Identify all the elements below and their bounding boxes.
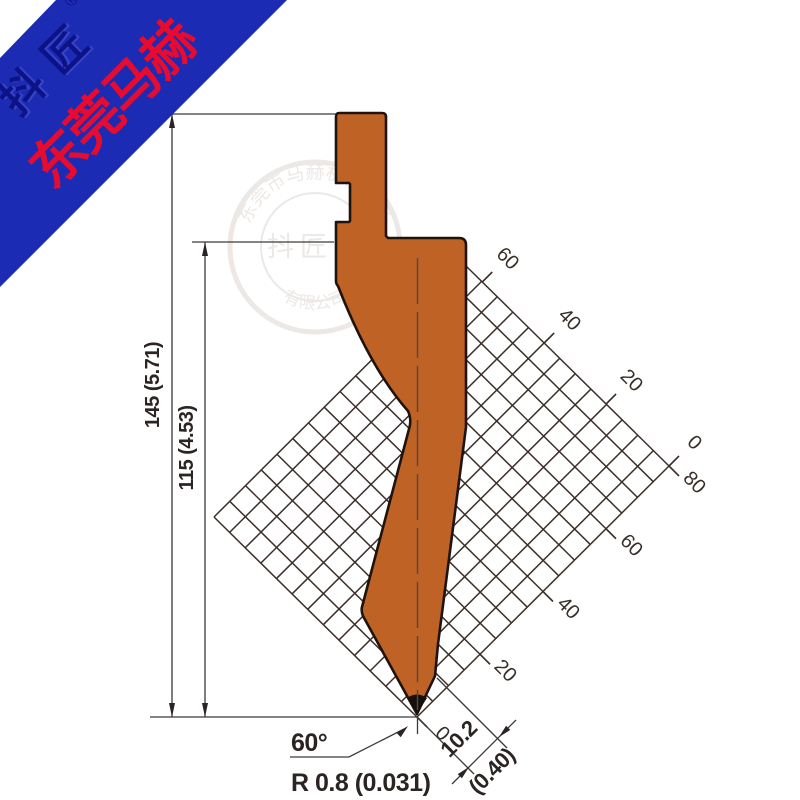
grid-scale-label: 60 [616,530,647,561]
grid-line [669,456,679,466]
tip-angle-callout: 60° R 0.8 (0.031) [290,726,431,797]
grid-scale-label: 40 [553,593,584,624]
grid-line [480,654,490,664]
label-working-height: 115 (4.53) [176,405,198,490]
technical-drawing: 东莞市马赫机械设备 有限公司 抖匠 ® 0204060806040200 145… [0,0,800,800]
grid-line [482,272,492,282]
label-tip-width-in: (0.40) [464,742,520,798]
label-tip-width-mm: 10.2 [435,715,482,762]
grid-line [606,529,616,539]
grid-scale-label: 20 [490,655,521,686]
arrowhead [169,703,175,717]
grid-line [466,266,669,466]
grid-scale-label: 80 [679,467,710,498]
label-tip-radius: R 0.8 (0.031) [291,769,431,797]
watermark-center-text: 抖匠 [267,232,333,262]
label-total-height: 145 (5.71) [142,342,164,428]
grid-line [669,466,679,476]
grid-line [544,333,554,343]
grid-scale-label: 40 [554,304,585,335]
page: 东莞市马赫机械设备 有限公司 抖匠 ® 0204060806040200 145… [0,0,800,800]
arrowhead [202,242,208,256]
grid-scale-label: 0 [683,431,706,454]
grid-scale-label: 20 [616,365,647,396]
label-tip-angle: 60° [291,729,327,757]
grid-line [543,592,553,602]
grid-scale-label: 60 [492,243,523,274]
brand-banner: 抖匠 抖匠 ® 东莞马赫 [0,0,287,287]
arrowhead [202,703,208,717]
grid-line [606,394,616,404]
